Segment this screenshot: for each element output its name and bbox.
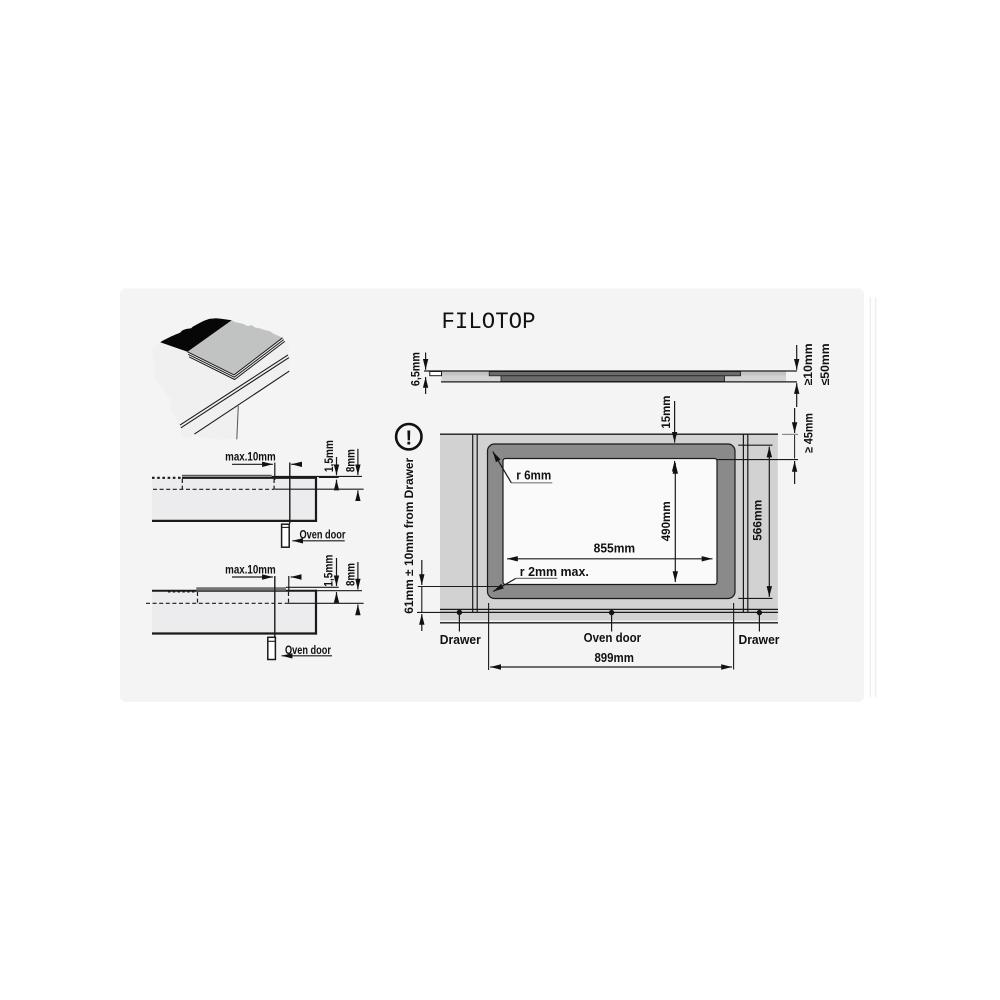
svg-text:6,5mm: 6,5mm <box>408 352 422 386</box>
svg-text:490mm: 490mm <box>659 501 673 541</box>
svg-text:61mm ± 10mm from Drawer: 61mm ± 10mm from Drawer <box>402 457 416 613</box>
svg-text:max.10mm: max.10mm <box>225 450 276 464</box>
svg-text:Oven door: Oven door <box>300 528 346 542</box>
svg-text:1,5mm: 1,5mm <box>322 440 336 472</box>
svg-text:15mm: 15mm <box>659 396 673 429</box>
svg-text:≥10mm: ≥10mm <box>801 343 815 385</box>
svg-text:899mm: 899mm <box>594 651 634 665</box>
svg-text:Oven door: Oven door <box>584 631 642 645</box>
svg-text:Drawer: Drawer <box>739 633 780 647</box>
svg-text:≤50mm: ≤50mm <box>818 343 832 385</box>
svg-text:r 6mm: r 6mm <box>516 469 551 483</box>
svg-text:855mm: 855mm <box>594 541 636 555</box>
svg-text:max.10mm: max.10mm <box>225 562 276 576</box>
svg-text:8mm: 8mm <box>343 563 357 586</box>
svg-text:Oven door: Oven door <box>285 643 331 657</box>
svg-text:Drawer: Drawer <box>440 633 481 647</box>
svg-text:8mm: 8mm <box>343 449 357 472</box>
svg-text:1,5mm: 1,5mm <box>322 555 336 587</box>
svg-text:r 2mm max.: r 2mm max. <box>520 565 589 579</box>
svg-text:FILOTOP: FILOTOP <box>442 309 536 335</box>
svg-text:!: ! <box>405 428 412 450</box>
svg-text:566mm: 566mm <box>750 500 764 541</box>
svg-text:≥ 45mm: ≥ 45mm <box>802 413 816 453</box>
